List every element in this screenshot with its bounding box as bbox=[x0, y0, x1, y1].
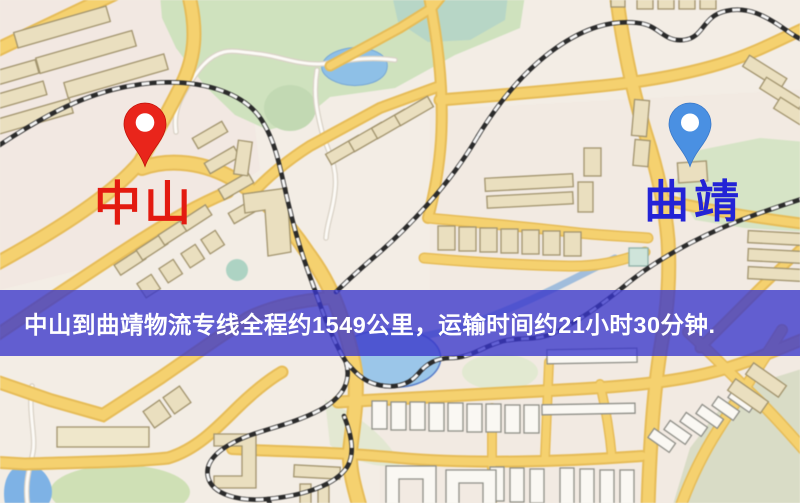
map-artwork bbox=[0, 0, 800, 503]
blue-marker-icon bbox=[666, 101, 714, 169]
origin-pin-icon[interactable] bbox=[121, 101, 169, 169]
destination-pin-icon[interactable] bbox=[666, 101, 714, 169]
destination-city-label: 曲靖 bbox=[644, 179, 744, 224]
origin-city-label: 中山 bbox=[94, 180, 194, 227]
red-marker-icon bbox=[121, 101, 169, 169]
route-info-banner: 中山到曲靖物流专线全程约1549公里，运输时间约21小时30分钟. bbox=[0, 290, 800, 356]
map-screenshot: 中山 曲靖 中山到曲靖物流专线全程约1549公里，运输时间约21小时30分钟. bbox=[0, 0, 800, 503]
route-info-text: 中山到曲靖物流专线全程约1549公里，运输时间约21小时30分钟. bbox=[24, 306, 716, 340]
